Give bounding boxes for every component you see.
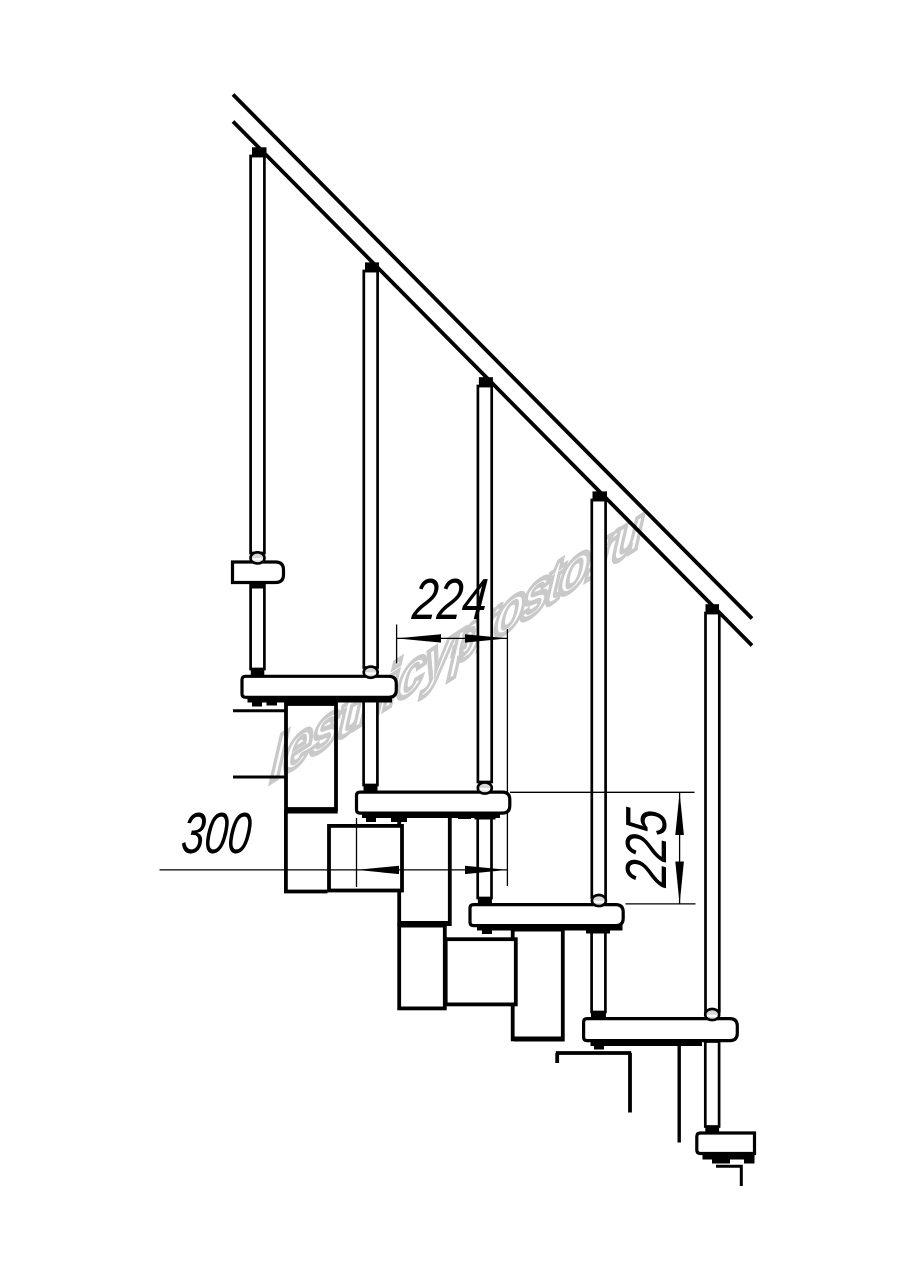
svg-text:300: 300: [179, 801, 255, 866]
svg-text:224: 224: [409, 567, 491, 632]
svg-text:225: 225: [614, 805, 679, 890]
